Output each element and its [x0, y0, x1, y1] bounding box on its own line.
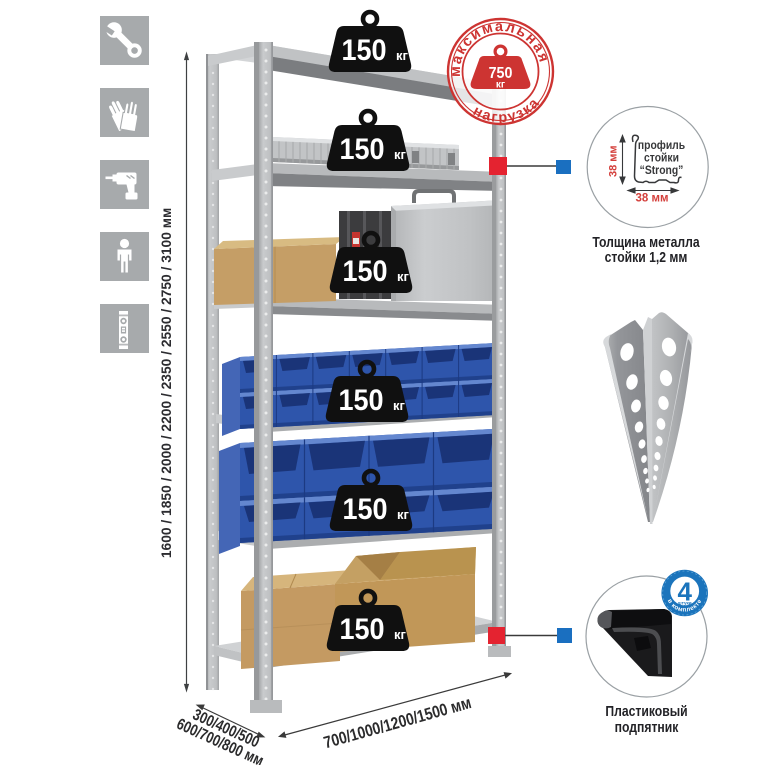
svg-text:штуки: штуки	[678, 601, 692, 606]
svg-text:кг: кг	[394, 627, 407, 642]
svg-text:“Strong”: “Strong”	[640, 165, 684, 178]
svg-text:профиль: профиль	[638, 140, 686, 153]
svg-text:1600 / 1850 / 2000 / 2200 / 23: 1600 / 1850 / 2000 / 2200 / 2350 / 2550 …	[159, 208, 174, 558]
svg-text:кг: кг	[394, 147, 407, 162]
svg-text:150: 150	[339, 133, 384, 167]
svg-text:150: 150	[342, 493, 387, 527]
svg-text:Толщина металла: Толщина металла	[592, 234, 700, 250]
svg-text:38 мм: 38 мм	[635, 193, 668, 205]
svg-text:Пластиковый: Пластиковый	[605, 703, 687, 719]
svg-text:кг: кг	[397, 269, 410, 284]
svg-text:кг: кг	[397, 507, 410, 522]
svg-text:кг: кг	[496, 80, 505, 91]
svg-text:стойки: стойки	[644, 152, 679, 165]
svg-text:подпятник: подпятник	[615, 719, 679, 735]
svg-text:стойки 1,2 мм: стойки 1,2 мм	[605, 249, 688, 265]
svg-text:150: 150	[339, 613, 384, 647]
svg-text:150: 150	[342, 255, 387, 289]
svg-text:кг: кг	[396, 48, 409, 63]
svg-text:кг: кг	[393, 398, 406, 413]
svg-text:150: 150	[341, 34, 386, 68]
svg-text:38 мм: 38 мм	[608, 145, 620, 177]
svg-text:150: 150	[338, 384, 383, 418]
